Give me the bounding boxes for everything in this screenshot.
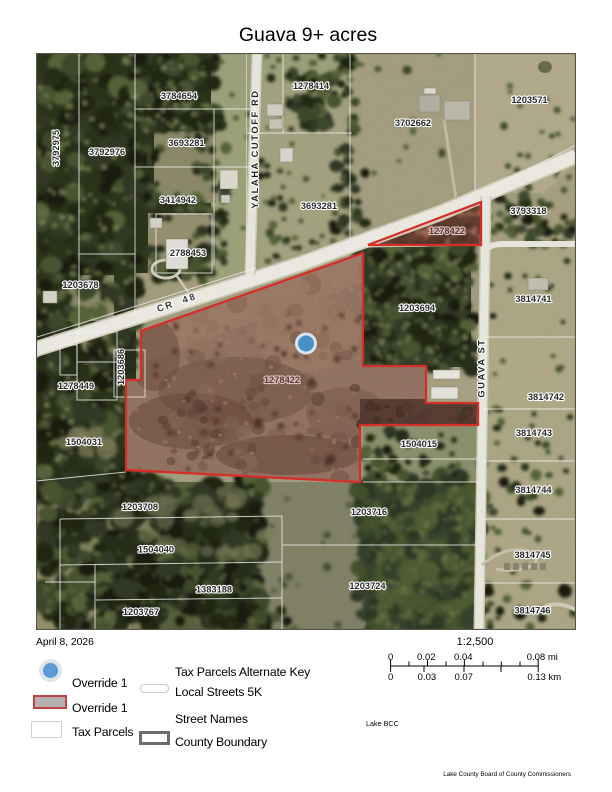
svg-text:1504040: 1504040 (138, 545, 174, 555)
svg-text:1203708: 1203708 (122, 502, 158, 512)
svg-text:1504015: 1504015 (401, 439, 437, 449)
svg-text:1278422: 1278422 (264, 375, 300, 385)
svg-text:3814744: 3814744 (515, 485, 552, 495)
svg-text:3814742: 3814742 (528, 392, 564, 402)
svg-text:0: 0 (388, 652, 393, 663)
svg-text:3792975: 3792975 (51, 130, 61, 166)
svg-text:0: 0 (388, 672, 393, 683)
svg-text:0.08 mi: 0.08 mi (527, 652, 558, 663)
svg-text:3414942: 3414942 (160, 195, 196, 205)
svg-text:3702662: 3702662 (395, 118, 431, 128)
svg-text:1203686: 1203686 (116, 349, 126, 385)
svg-text:1383188: 1383188 (196, 585, 232, 595)
svg-text:0.13 km: 0.13 km (527, 672, 561, 683)
svg-text:0.03: 0.03 (418, 672, 437, 683)
svg-text:1278449: 1278449 (58, 381, 94, 391)
svg-text:3784654: 3784654 (161, 91, 198, 101)
svg-text:3814746: 3814746 (514, 606, 550, 616)
svg-text:3814741: 3814741 (515, 294, 551, 304)
svg-text:3793318: 3793318 (510, 206, 546, 216)
svg-text:0.02: 0.02 (417, 652, 436, 663)
svg-text:1203571: 1203571 (511, 95, 547, 105)
svg-text:0.07: 0.07 (454, 672, 473, 683)
svg-text:1203694: 1203694 (399, 303, 436, 313)
svg-text:2788453: 2788453 (170, 248, 206, 258)
svg-text:1203716: 1203716 (351, 507, 387, 517)
svg-text:3693281: 3693281 (168, 138, 204, 148)
svg-text:1203724: 1203724 (349, 581, 386, 591)
svg-text:YALAHA CUTOFF RD: YALAHA CUTOFF RD (250, 89, 260, 208)
svg-text:3814743: 3814743 (516, 428, 552, 438)
svg-text:1203767: 1203767 (123, 607, 159, 617)
svg-text:3693281: 3693281 (301, 201, 337, 211)
svg-text:3814745: 3814745 (514, 550, 550, 560)
svg-text:0.04: 0.04 (454, 652, 473, 663)
svg-text:1504031: 1504031 (66, 437, 102, 447)
svg-text:GUAVA ST: GUAVA ST (477, 338, 487, 397)
svg-text:1203678: 1203678 (62, 280, 98, 290)
svg-text:1278422: 1278422 (429, 226, 465, 236)
svg-text:3792976: 3792976 (89, 147, 125, 157)
svg-text:1278414: 1278414 (293, 81, 330, 91)
